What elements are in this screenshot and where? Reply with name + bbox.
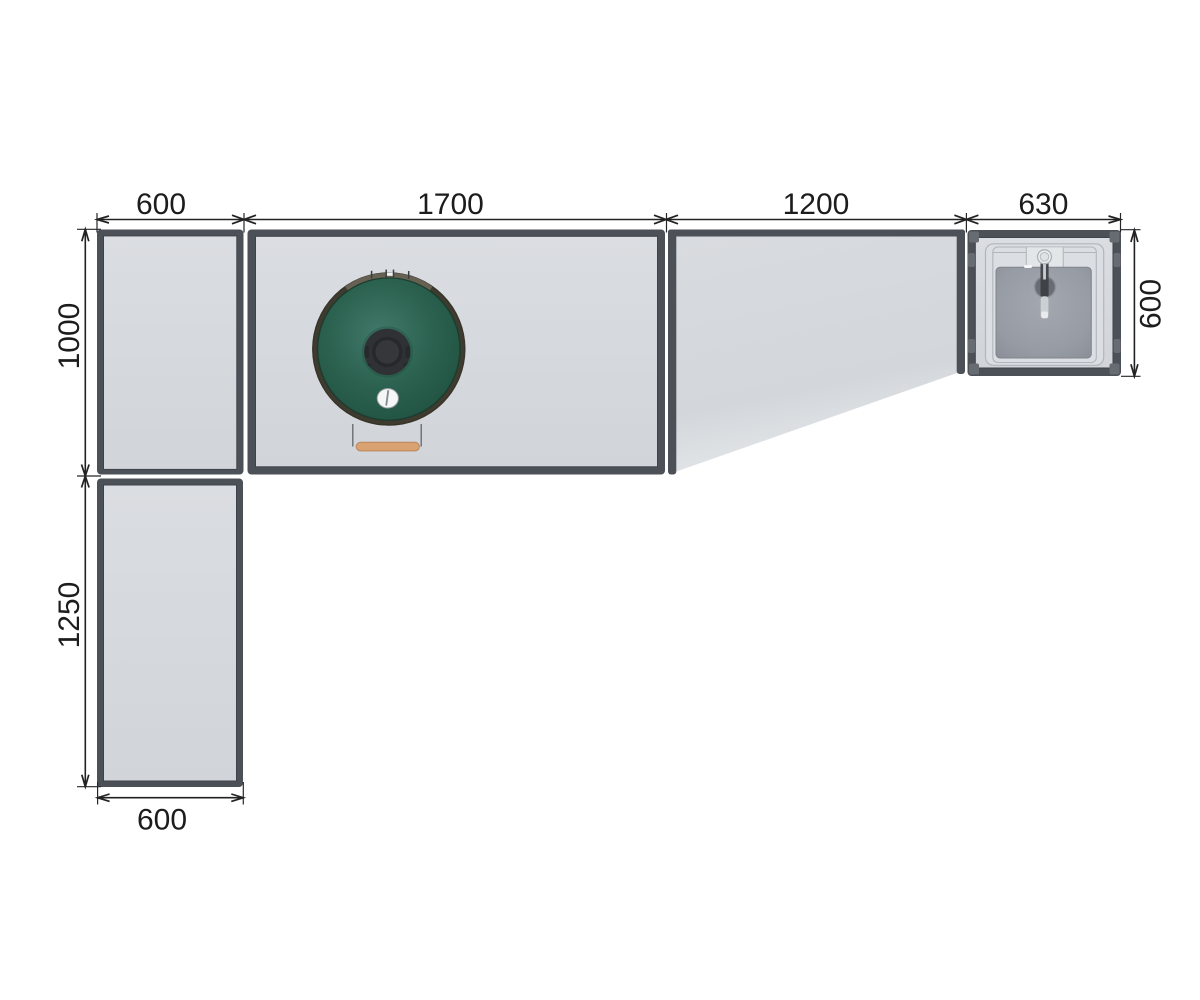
svg-text:1200: 1200: [783, 188, 850, 221]
svg-text:1700: 1700: [417, 188, 484, 221]
svg-text:1250: 1250: [53, 582, 86, 649]
svg-text:600: 600: [1135, 279, 1168, 329]
svg-text:600: 600: [137, 804, 187, 837]
svg-text:630: 630: [1018, 188, 1068, 221]
svg-text:1000: 1000: [53, 303, 86, 370]
svg-text:600: 600: [136, 188, 186, 221]
